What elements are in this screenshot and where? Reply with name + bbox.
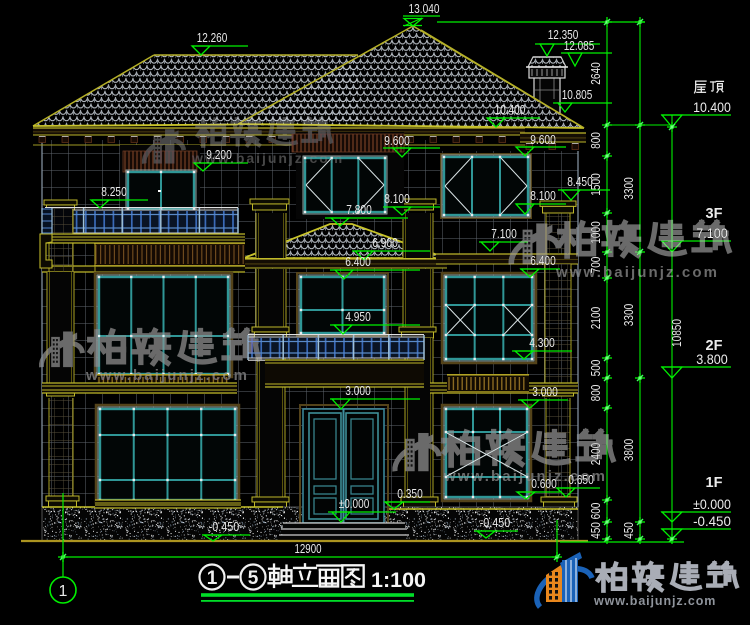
svg-text:450: 450 (589, 522, 603, 539)
svg-text:9.600: 9.600 (530, 133, 556, 147)
svg-text:1: 1 (207, 568, 218, 589)
svg-text:3.000: 3.000 (532, 385, 558, 399)
svg-text:12.260: 12.260 (197, 31, 228, 45)
svg-text:www.baijunjz.com: www.baijunjz.com (191, 150, 344, 166)
svg-text:1500: 1500 (589, 173, 603, 195)
svg-text:10.400: 10.400 (495, 103, 526, 117)
svg-text:3300: 3300 (622, 304, 636, 326)
svg-text:6.400: 6.400 (345, 255, 371, 269)
svg-text:6.900: 6.900 (372, 236, 398, 250)
svg-text:1:100: 1:100 (371, 568, 426, 592)
svg-text:www.baijunjz.com: www.baijunjz.com (593, 594, 716, 608)
svg-text:1F: 1F (706, 475, 723, 491)
svg-text:8.100: 8.100 (530, 189, 556, 203)
svg-text:7.800: 7.800 (346, 203, 372, 217)
svg-text:8.250: 8.250 (101, 185, 127, 199)
svg-text:10.805: 10.805 (562, 88, 593, 102)
svg-text:3.000: 3.000 (345, 384, 371, 398)
svg-text:10.400: 10.400 (693, 99, 731, 115)
svg-text:0.350: 0.350 (397, 487, 423, 501)
svg-text:www.baijunjz.com: www.baijunjz.com (85, 367, 249, 384)
svg-text:10850: 10850 (670, 319, 684, 347)
svg-text:12900: 12900 (295, 541, 322, 556)
svg-text:-0.450: -0.450 (693, 513, 731, 529)
svg-text:800: 800 (589, 132, 603, 149)
svg-text:1: 1 (59, 583, 68, 600)
svg-text:500: 500 (589, 360, 603, 377)
svg-text:8.100: 8.100 (384, 192, 410, 206)
svg-text:4.300: 4.300 (529, 336, 555, 350)
svg-text:3300: 3300 (622, 177, 636, 199)
svg-text:12.085: 12.085 (564, 39, 595, 53)
svg-text:450: 450 (622, 522, 636, 539)
svg-text:www.baijunjz.com: www.baijunjz.com (555, 264, 719, 281)
svg-text:3800: 3800 (622, 439, 636, 461)
svg-text:±0.000: ±0.000 (693, 496, 731, 512)
svg-text:2F: 2F (706, 338, 723, 354)
svg-text:5: 5 (248, 568, 259, 589)
svg-text:800: 800 (589, 385, 603, 402)
svg-text:-0.450: -0.450 (480, 516, 511, 530)
svg-text:www.baijunjz.com: www.baijunjz.com (443, 468, 607, 485)
svg-text:±0.000: ±0.000 (339, 497, 370, 511)
svg-text:600: 600 (589, 503, 603, 520)
svg-text:13.040: 13.040 (409, 2, 440, 16)
svg-text:2640: 2640 (589, 62, 603, 84)
svg-text:2100: 2100 (589, 307, 603, 329)
svg-text:-0.450: -0.450 (209, 520, 240, 534)
svg-text:3F: 3F (706, 206, 723, 222)
svg-text:9.600: 9.600 (384, 134, 410, 148)
svg-text:7.100: 7.100 (491, 227, 517, 241)
svg-text:4.950: 4.950 (345, 310, 371, 324)
